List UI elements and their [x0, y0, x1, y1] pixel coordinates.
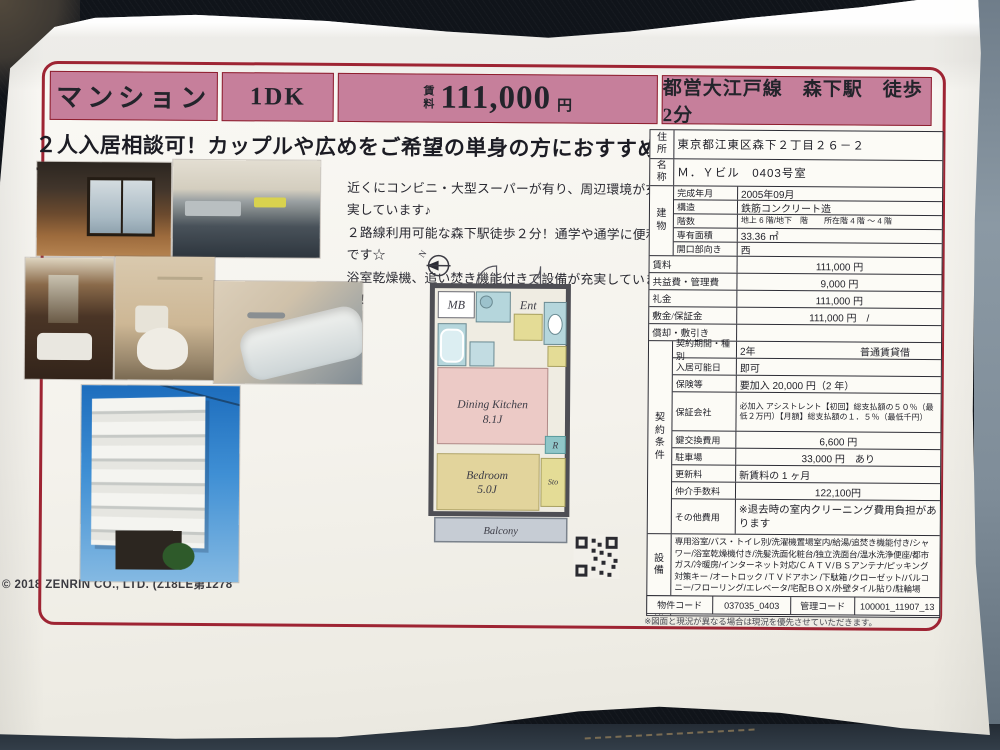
header-band: マンション 1DK 賃 料 111,000 円 都営大江戸線 森下駅 徒歩 2分	[50, 71, 932, 126]
bathtub-faucet	[247, 312, 286, 318]
row-value: 西	[738, 243, 942, 257]
row-label: 賃料	[650, 256, 738, 273]
row-label: 完成年月	[674, 186, 738, 199]
row-value: 必加入 アシストレント【初回】総支払額の５０％（最低２万円）【月額】総支払額の１…	[736, 393, 940, 432]
row-label: 敷金/保証金	[649, 307, 737, 324]
row-value: 9,000 円	[737, 274, 941, 291]
row-label: その他費用	[672, 499, 736, 533]
mgmt-code-value: 100001_11907_13	[855, 598, 939, 616]
flyer-content: マンション 1DK 賃 料 111,000 円 都営大江戸線 森下駅 徒歩 2分…	[28, 55, 962, 641]
entryway	[514, 314, 542, 340]
svg-text:8.1J: 8.1J	[483, 414, 503, 426]
washbasin-sink	[37, 333, 92, 360]
property-code-label: 物件コード	[647, 596, 713, 613]
toilet-towel-bar	[157, 276, 203, 279]
row-value: 111,000 円	[737, 291, 941, 308]
photo-bathtub	[214, 281, 363, 384]
photo-toilet	[115, 256, 215, 380]
row-value: 即可	[737, 359, 941, 376]
mgmt-code-label: 管理コード	[791, 597, 855, 614]
equipment-list: 専用浴室/バス・トイレ別/洗濯機置場室内/給湯/追焚き機能付き/シャワー/浴室乾…	[671, 534, 939, 598]
row-value: 2年 普通賃貸借	[737, 342, 941, 359]
kitchen-towel	[254, 197, 286, 207]
property-type-label: マンション	[50, 71, 218, 121]
row-label: 保険等	[673, 375, 737, 391]
row-label: 保証会社	[672, 392, 736, 430]
contract-section: 契約条件 契約期間・種別 2年 普通賃貸借 入居可能日即可 保険等要加入 20,…	[648, 341, 941, 536]
svg-text:Sto: Sto	[548, 477, 558, 486]
washer-space	[470, 342, 494, 366]
station-access-label: 都営大江戸線 森下駅 徒歩 2分	[662, 75, 932, 126]
row-value: 新賃料の 1 ヶ月	[736, 466, 940, 483]
row-label: 鍵交換費用	[672, 431, 736, 447]
row-value: 33,000 円 あり	[736, 449, 940, 466]
door-arc-left	[476, 266, 496, 286]
row-label: 入居可能日	[673, 358, 737, 374]
address-label: 住所	[650, 130, 674, 158]
svg-text:Bedroom: Bedroom	[466, 470, 508, 482]
svg-text:R: R	[551, 441, 558, 451]
layout-label: 1DK	[222, 72, 334, 122]
name-label: 名称	[650, 159, 674, 185]
contract-kind: 普通賃貸借	[860, 343, 910, 358]
photo-living-room	[37, 162, 172, 257]
living-room-window	[87, 177, 155, 236]
contract-group-label: 契約条件	[648, 341, 673, 533]
property-info-table: 住所 東京都江東区森下２丁目２６－２ 名称 Ｍ．Ｙビル 0403号室 建物 完成…	[646, 129, 943, 618]
row-value: ※退去時の室内クリーニング費用負担があります	[736, 500, 940, 535]
contract-term: 2年	[740, 342, 756, 357]
rent-label: 賃 料	[423, 85, 434, 110]
description-line-1: 近くにコンビニ・大型スーパーが有り、周辺環境が充実しています♪	[347, 177, 663, 224]
rent-cell: 賃 料 111,000 円	[338, 73, 658, 124]
hall-storage	[548, 346, 566, 366]
row-label: 開口部向き	[674, 242, 738, 255]
svg-text:N: N	[417, 248, 429, 259]
bathtub-fixture	[441, 330, 463, 362]
row-label: 仲介手数料	[672, 482, 736, 498]
kitchen-burner	[480, 296, 492, 308]
row-value: 鉄筋コンクリート造	[738, 201, 942, 215]
qr-code	[573, 535, 619, 579]
row-label: 更新料	[672, 465, 736, 481]
washbasin-mirror	[48, 275, 78, 324]
row-value: 33.36 ㎡	[738, 229, 942, 243]
building-shrub	[163, 542, 195, 570]
toilet-fixture	[548, 314, 562, 334]
door-arc-right	[520, 266, 540, 286]
svg-text:Dining Kitchen: Dining Kitchen	[456, 399, 528, 412]
svg-text:Ent: Ent	[519, 298, 537, 312]
svg-text:5.0J: 5.0J	[477, 484, 497, 496]
floor-plan: N MB Ent Dining Kitchen 8.1J R	[415, 245, 585, 546]
row-value	[737, 325, 941, 342]
kitchen-counter	[476, 292, 510, 322]
row-label: 専有面積	[674, 228, 738, 241]
row-value: 111,000 円	[738, 257, 942, 274]
row-value: 122,100円	[736, 483, 940, 500]
row-value: 6,600 円	[736, 432, 940, 449]
kitchen-sink	[185, 201, 241, 217]
rent-value: 111,000	[440, 80, 551, 118]
row-value: 111,000 円 /	[737, 308, 941, 325]
row-label: 階数	[674, 214, 738, 227]
rent-unit: 円	[557, 94, 572, 115]
photo-of-rental-flyer: © 2018 ZENRIN CO., LTD. (Z18LE第1278 マンショ…	[0, 0, 1000, 750]
building-facade	[91, 396, 205, 548]
photo-washbasin	[25, 258, 114, 380]
svg-text:MB: MB	[447, 298, 466, 312]
row-label: 契約期間・種別	[673, 341, 737, 357]
building-section: 建物 完成年月2005年09月 構造鉄筋コンクリート造 階数地上 6 階/地下 …	[650, 186, 942, 258]
property-code-value: 037035_0403	[713, 597, 791, 615]
photo-kitchen	[173, 160, 321, 258]
equipment-group-label: 設備	[647, 534, 671, 596]
row-label: 駐車場	[672, 448, 736, 464]
code-row: 物件コード 037035_0403 管理コード 100001_11907_13	[646, 595, 940, 616]
north-compass-icon: N	[416, 248, 450, 276]
building-group-label: 建物	[650, 186, 674, 255]
photo-building-exterior	[80, 385, 239, 582]
row-label: 礼金	[649, 290, 737, 307]
address-value: 東京都江東区森下２丁目２６－２	[674, 130, 942, 160]
row-label: 共益費・管理費	[649, 273, 737, 290]
toilet-bowl	[137, 328, 189, 370]
disclaimer-note: ※図面と現況が異なる場合は現況を優先させていただきます。	[644, 615, 944, 629]
row-label: 構造	[674, 200, 738, 213]
name-value: Ｍ．Ｙビル 0403号室	[674, 159, 942, 187]
row-value: 要加入 20,000 円（2 年）	[737, 376, 941, 393]
svg-text:Balcony: Balcony	[483, 526, 518, 537]
